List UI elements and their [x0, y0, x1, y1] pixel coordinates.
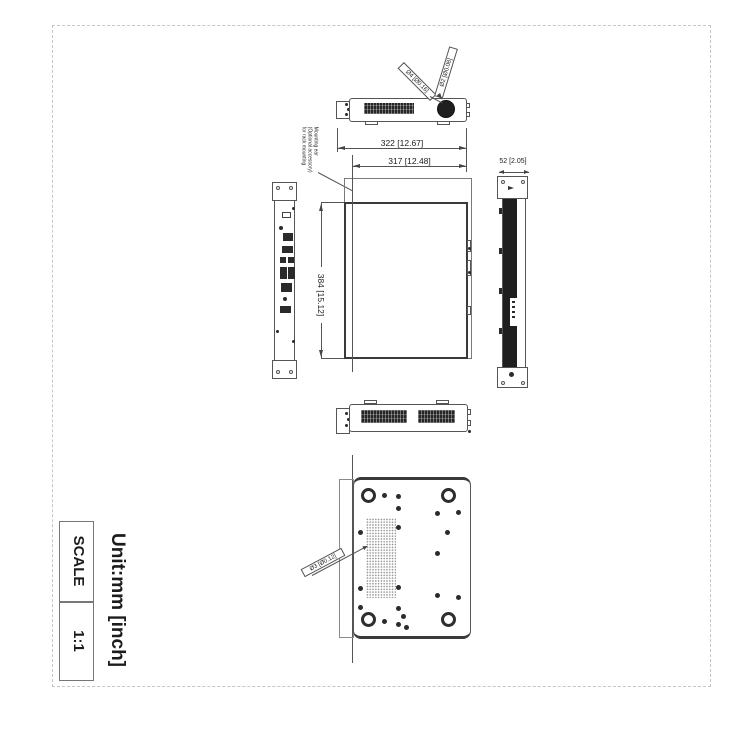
side-edge-tab — [499, 288, 502, 294]
extension-line — [321, 358, 344, 359]
ear-screw-hole — [345, 412, 348, 415]
dimension-drawing-page: Ø4 [Ø0.16] Ø2 [Ø0.08] 322 [12.67] 317 [1… — [0, 0, 750, 750]
dim-arrow — [319, 350, 323, 357]
ear-plate-hole — [289, 186, 293, 190]
dimension-line — [337, 148, 467, 149]
panel-screw — [292, 340, 295, 343]
dim-arrow — [319, 204, 323, 211]
bezel-label-mark — [512, 306, 515, 308]
port-hdmi — [283, 233, 293, 241]
screw-hole — [396, 494, 401, 499]
foot-ring — [361, 612, 376, 627]
dimension-line — [352, 166, 467, 167]
ear-plate-hole — [276, 186, 280, 190]
dim-arrow — [499, 170, 504, 174]
screw-hole — [435, 551, 440, 556]
dim-label-317: 317 [12.48] — [352, 156, 467, 166]
mounting-ear-note: Mounting ear (Optional accessory) for ra… — [300, 127, 317, 179]
screw-hole — [396, 622, 401, 627]
ear-screw-hole — [345, 424, 348, 427]
extension-line — [321, 202, 344, 203]
screw-hole — [396, 506, 401, 511]
rear-connector-tab — [467, 306, 471, 315]
ear-plate-hole — [289, 370, 293, 374]
dim-label-322: 322 [12.67] — [337, 138, 467, 148]
port-dot — [279, 226, 283, 230]
side2-edge-tab — [467, 420, 471, 426]
side2-vent-grille — [361, 410, 407, 423]
screw-hole — [404, 625, 409, 630]
side-front-bezel — [503, 199, 517, 367]
bezel-notch — [517, 202, 522, 218]
side-plate-dot — [509, 372, 514, 377]
side2-foot — [364, 400, 377, 404]
rear-edge-mark — [468, 271, 471, 274]
screw-hole — [396, 606, 401, 611]
side2-mounting-ear — [336, 408, 350, 434]
port-ethernet — [281, 283, 292, 292]
top-view-body — [344, 202, 468, 359]
side-edge-tab — [499, 328, 502, 334]
port-outline — [282, 212, 291, 218]
front-foot — [437, 121, 450, 125]
dim-label-52: 52 [2.05] — [492, 158, 534, 165]
screw-hole — [435, 593, 440, 598]
bezel-label-mark — [512, 301, 515, 303]
port-vga — [282, 246, 293, 253]
port-block — [280, 257, 286, 263]
bezel-label-mark — [512, 311, 515, 313]
ear-plate-hole — [501, 381, 505, 385]
orientation-mark — [508, 186, 514, 190]
dim-arrow — [524, 170, 529, 174]
scale-table-divider — [60, 601, 93, 603]
screw-hole — [396, 525, 401, 530]
side-edge-tab — [499, 248, 502, 254]
front-foot — [365, 121, 378, 125]
ear-screw-hole — [345, 113, 348, 116]
screw-hole — [358, 605, 363, 610]
ear-plate-hole — [501, 180, 505, 184]
front-vent-grille — [364, 103, 414, 114]
port-usb — [280, 267, 287, 279]
panel-screw — [292, 207, 295, 210]
front-side-tab — [466, 112, 470, 117]
rear-connector-tab — [467, 240, 471, 252]
note-line: Mounting ear — [312, 127, 318, 179]
rear-edge-mark — [468, 247, 471, 250]
screw-hole — [401, 614, 406, 619]
panel-screw — [276, 330, 279, 333]
screw-hole — [445, 530, 450, 535]
port-usb — [288, 267, 295, 279]
rear-edge-mark — [468, 430, 471, 433]
bottom-vent-perforation — [366, 518, 396, 598]
mounting-flange-line — [352, 155, 353, 372]
rear-panel-body — [274, 200, 295, 361]
side2-vent-grille — [418, 410, 455, 423]
side2-edge-tab — [467, 409, 471, 415]
front-side-tab — [466, 103, 470, 108]
ear-screw-hole — [345, 103, 348, 106]
screw-hole — [396, 585, 401, 590]
screw-hole — [456, 510, 461, 515]
screw-hole — [435, 511, 440, 516]
screw-hole — [456, 595, 461, 600]
bezel-label-mark — [512, 316, 515, 318]
foot-ring — [441, 488, 456, 503]
side2-foot — [436, 400, 449, 404]
port-power — [280, 306, 291, 313]
ear-plate-hole — [521, 180, 525, 184]
foot-ring — [441, 612, 456, 627]
screw-hole — [358, 530, 363, 535]
scale-table-value: 1:1 — [67, 609, 87, 673]
foot-ring — [361, 488, 376, 503]
note-line: (Optional accessory) — [306, 127, 312, 179]
scale-table-header: SCALE — [67, 529, 87, 593]
ear-plate-hole — [276, 370, 280, 374]
screw-hole — [382, 493, 387, 498]
port-block — [288, 257, 294, 263]
unit-label: Unit:mm [inch] — [104, 520, 128, 680]
side-edge-tab — [499, 208, 502, 214]
ear-plate-hole — [521, 381, 525, 385]
port-dot — [283, 297, 287, 301]
screw-hole — [382, 619, 387, 624]
dim-label-384: 384 [15.12] — [316, 267, 326, 323]
screw-hole — [358, 586, 363, 591]
rear-ear-plate — [272, 182, 297, 201]
